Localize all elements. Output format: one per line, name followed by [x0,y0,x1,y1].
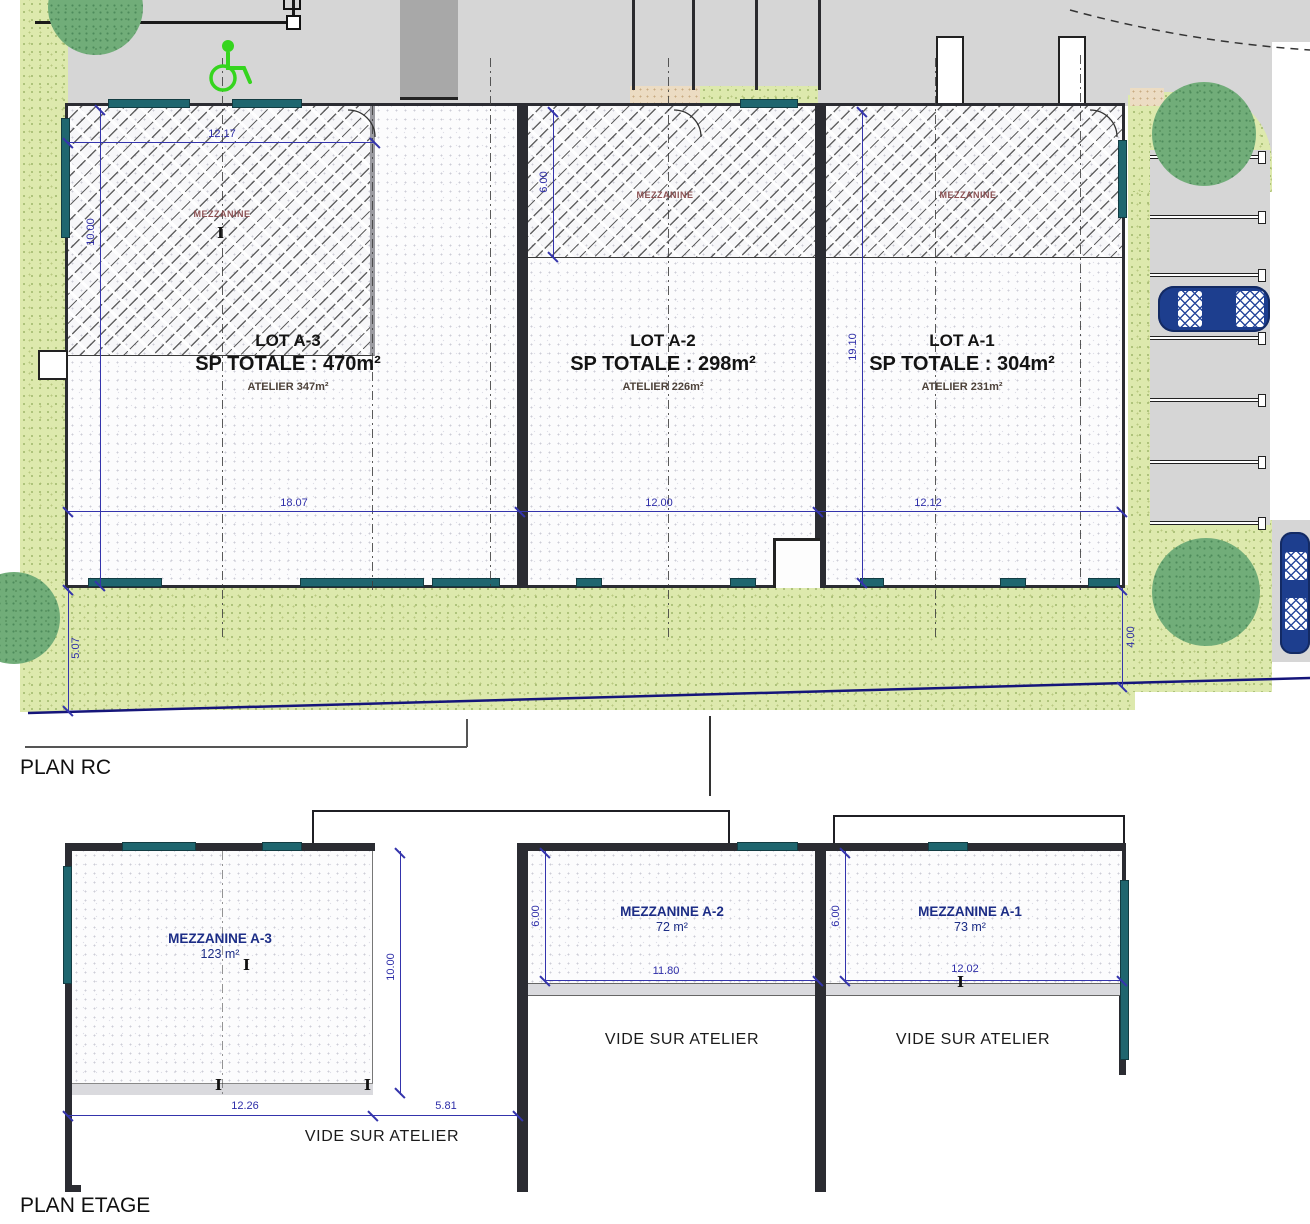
window-segment [1118,140,1127,218]
dimension-label: 4.00 [1125,626,1137,647]
callout-line [466,719,468,747]
interior-enclosure [773,538,820,588]
window-segment [1120,880,1129,1060]
dimension-label: 18.07 [254,497,334,509]
tree [1152,538,1260,646]
lot-atelier-surface: ATELIER 226m² [513,381,813,393]
mezzanine-a3-label: MEZZANINE A-3 123 m² [70,931,370,961]
lot-label-a1: LOT A-1 SP TOTALE : 304m² ATELIER 231m² [812,331,1112,393]
survey-marker [283,0,301,10]
mezzanine-area: 72 m² [522,920,822,934]
plan-etage-title: PLAN ETAGE [20,1194,150,1218]
stall-end-cap [1258,211,1266,224]
mezzanine-zone-label: MEZZANINE [167,209,277,219]
dimension-line [845,980,1122,981]
dimension-label: 5.07 [70,637,82,658]
dimension-label: 12.02 [925,963,1005,975]
parking-stall-line [1150,460,1260,464]
dimension-line [545,980,818,981]
mezzanine-a1-label: MEZZANINE A-1 73 m² [820,904,1120,934]
stall-end-cap [1258,269,1266,282]
window-segment [300,578,424,587]
entry-bay-wall [818,0,821,90]
pilaster [38,350,68,380]
column-marker: I [243,958,250,973]
stall-end-cap [1258,517,1266,530]
car-windshield [1285,552,1307,580]
etage-wall-top-a3 [65,843,375,851]
window-segment [262,842,302,851]
dimension-line [68,1115,518,1116]
dimension-label: 5.81 [406,1100,486,1112]
callout-line [25,746,467,748]
car-rear-window [1285,598,1307,630]
entry-bay-wall [755,0,758,90]
mezzanine-hatch-a2 [528,106,815,258]
plan-rc-title: PLAN RC [20,756,111,780]
window-segment [108,99,190,108]
column-marker: I [215,1078,222,1093]
etage-party-wall [517,843,528,1192]
window-segment [737,842,798,851]
parking-stall-line [1150,273,1260,277]
mezzanine-zone-label: MEZZANINE [913,190,1023,200]
mezzanine-area: 123 m² [70,947,370,961]
lot-atelier-surface: ATELIER 231m² [812,381,1112,393]
stall-end-cap [1258,151,1266,164]
mezzanine-name: MEZZANINE A-3 [70,931,370,946]
parking-stall-line [1150,336,1260,340]
lot-surface: SP TOTALE : 470m² [138,353,438,376]
dimension-label: 10.00 [85,218,97,246]
dimension-label: 6.00 [538,171,550,192]
stall-end-cap [1258,332,1266,345]
void-label: VIDE SUR ATELIER [552,1031,812,1049]
column-marker: I [364,1078,371,1093]
void-label: VIDE SUR ATELIER [252,1128,512,1146]
car-top-view [1280,532,1310,654]
void-label: VIDE SUR ATELIER [843,1031,1103,1049]
lot-surface: SP TOTALE : 304m² [812,353,1112,376]
lot-surface: SP TOTALE : 298m² [513,353,813,376]
dimension-label: 12.12 [888,497,968,509]
window-segment [61,118,70,238]
parking-stall-line [1150,398,1260,402]
ramp [400,0,458,100]
column-marker: I [217,226,224,241]
lot-name: LOT A-1 [812,331,1112,351]
dimension-line [400,851,401,1095]
wall-joint-marker [286,15,301,30]
dimension-label: 12.17 [192,128,252,140]
mezzanine-a2-label: MEZZANINE A-2 72 m² [522,904,822,934]
entry-bay-wall [692,0,695,90]
column-marker: I [957,975,964,990]
roof-outline [833,815,1125,846]
parking-stall-line [1150,215,1260,219]
window-segment [1000,578,1026,587]
mezzanine-hatch-a1 [826,106,1122,258]
dimension-line [1122,588,1123,688]
grid-line [222,851,223,1095]
pier [936,36,964,108]
etage-party-wall [815,843,826,1192]
site-plan-drawing: 12.17 10.00 6.00 19.10 18.07 12.00 12.12… [0,0,1310,1224]
lot-name: LOT A-3 [138,331,438,351]
pier [1058,36,1086,108]
slab-edge [826,983,1122,996]
lot-label-a2: LOT A-2 SP TOTALE : 298m² ATELIER 226m² [513,331,813,393]
mezzanine-zone-label: MEZZANINE [610,190,720,200]
tree [1152,82,1256,186]
mezzanine-name: MEZZANINE A-2 [522,904,822,919]
car-windshield [1236,291,1264,327]
grid-line [1080,55,1081,590]
dimension-label: 12.00 [619,497,699,509]
etage-wall-stub [65,1185,81,1192]
lot-label-a3: LOT A-3 SP TOTALE : 470m² ATELIER 347m² [138,331,438,393]
mezzanine-name: MEZZANINE A-1 [820,904,1120,919]
dimension-label: 11.80 [626,965,706,977]
dimension-line [553,110,554,258]
window-segment [576,578,602,587]
window-segment [232,99,302,108]
dimension-line [68,142,375,143]
dimension-line [68,588,69,712]
entry-bay-wall [632,0,635,90]
window-segment [1088,578,1120,587]
car-rear-window [1178,291,1202,327]
dimension-line [100,108,101,588]
pavement-area [1272,0,1310,42]
window-segment [928,842,968,851]
etage-wall-top-a1 [826,843,1126,851]
mezzanine-area: 73 m² [820,920,1120,934]
stall-end-cap [1258,394,1266,407]
window-segment [740,99,798,108]
pavement-area [35,0,1130,106]
dimension-line [68,511,1122,512]
section-line [709,716,711,796]
stall-end-cap [1258,456,1266,469]
roof-outline [312,810,730,846]
lot-atelier-surface: ATELIER 347m² [138,381,438,393]
paving-patch [1130,88,1164,106]
window-segment [730,578,756,587]
window-segment [63,866,72,984]
dimension-label: 10.00 [385,953,397,981]
dimension-label: 12.26 [205,1100,285,1112]
parking-stall-line [1150,521,1260,525]
lot-name: LOT A-2 [513,331,813,351]
window-segment [122,842,196,851]
grass-band-bottom [20,585,1135,710]
slab-edge [528,983,815,996]
